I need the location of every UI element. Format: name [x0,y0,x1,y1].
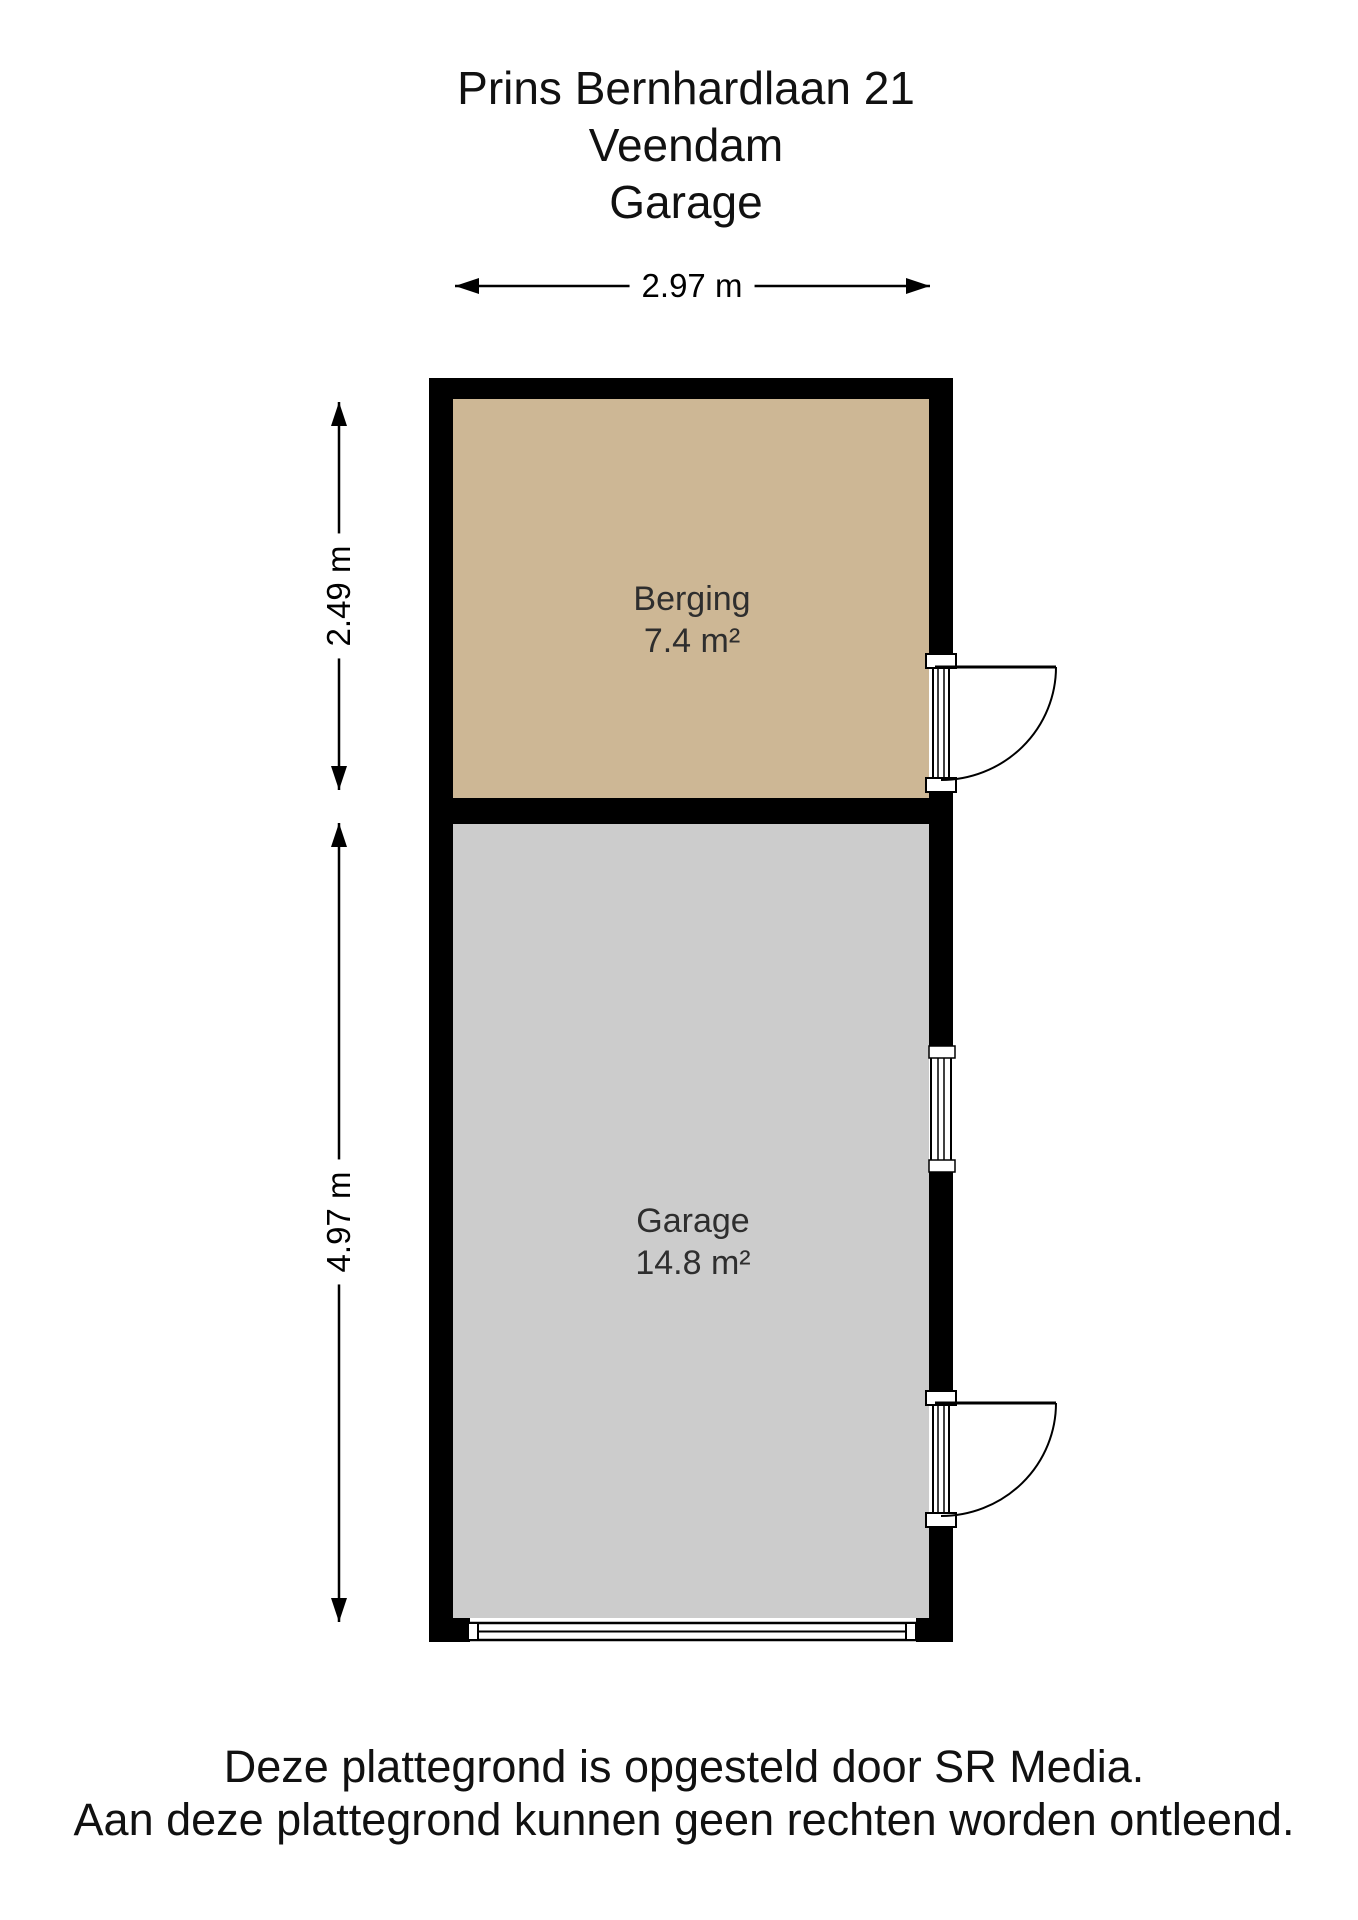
wall-top [429,378,953,399]
dim-label-width: 2.97 m [630,265,755,307]
arrowhead-left [455,278,479,294]
arrowhead-up-berging [331,402,347,426]
garage-side-door [926,1391,1056,1527]
garage-overhead-door [468,1623,916,1640]
door-threshold [933,1405,949,1513]
arrowhead-down-garage [331,1598,347,1622]
room-label-garage: Garage 14.8 m² [635,1200,750,1284]
room-name: Garage [635,1200,750,1242]
wall-right-segment-2 [929,793,953,1046]
dim-label-berging-height: 2.49 m [318,534,360,659]
wall-divider [429,798,953,824]
dim-label-garage-height: 4.97 m [318,1160,360,1285]
wall-left [429,378,453,1642]
garage-window [929,1046,955,1172]
room-label-berging: Berging 7.4 m² [633,578,750,662]
disclaimer-line-2: Aan deze plattegrond kunnen geen rechten… [74,1793,1295,1846]
window-frame [931,1046,951,1172]
title-address: Prins Bernhardlaan 21 [457,60,915,117]
room-area: 7.4 m² [633,620,750,662]
wall-right-segment-3 [929,1172,953,1391]
arrowhead-down-berging [331,766,347,790]
wall-bottom-right-stub [916,1618,953,1642]
disclaimer: Deze plattegrond is opgesteld door SR Me… [74,1740,1295,1846]
door-swing-arc [941,1403,1056,1516]
arrowhead-up-garage [331,823,347,847]
overhead-door-cap [906,1623,916,1640]
plan-title: Prins Bernhardlaan 21 Veendam Garage [457,60,915,231]
title-floor: Garage [457,174,915,231]
window-end-cap [929,1160,955,1172]
window-end-cap [929,1046,955,1058]
room-name: Berging [633,578,750,620]
room-area: 14.8 m² [635,1242,750,1284]
door-threshold [933,668,949,778]
wall-right-segment-1 [929,378,953,655]
door-swing-arc [941,667,1056,780]
wall-bottom-left-stub [429,1618,470,1642]
disclaimer-line-1: Deze plattegrond is opgesteld door SR Me… [74,1740,1295,1793]
overhead-door-cap [468,1623,478,1640]
arrowhead-right [906,278,930,294]
title-city: Veendam [457,117,915,174]
floorplan-page: Prins Bernhardlaan 21 Veendam Garage 2.9… [0,0,1358,1920]
berging-door [926,654,1056,792]
